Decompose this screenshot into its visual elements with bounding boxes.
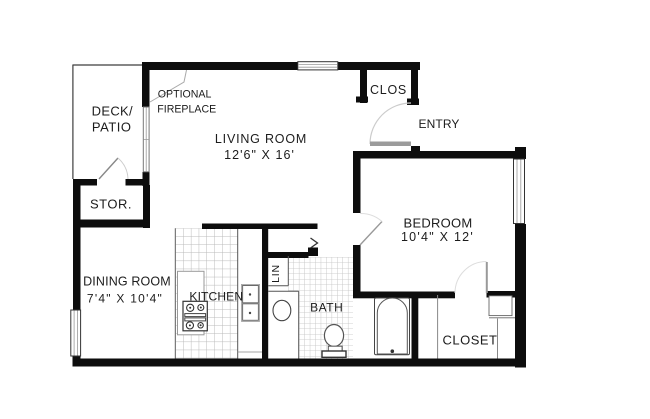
svg-text:DINING ROOM: DINING ROOM [83, 275, 171, 289]
svg-text:BEDROOM: BEDROOM [404, 215, 473, 230]
svg-text:DECK/: DECK/ [92, 103, 133, 118]
svg-text:FIREPLACE: FIREPLACE [157, 103, 216, 115]
svg-text:KITCHEN: KITCHEN [189, 289, 243, 303]
svg-text:LIN: LIN [270, 264, 282, 283]
svg-text:7'4" X 10'4": 7'4" X 10'4" [87, 292, 163, 306]
svg-text:STOR.: STOR. [90, 197, 132, 212]
svg-text:BATH: BATH [310, 301, 343, 315]
svg-text:12'6" X 16': 12'6" X 16' [224, 148, 295, 162]
svg-text:ENTRY: ENTRY [419, 117, 460, 131]
svg-text:10'4" X 12': 10'4" X 12' [401, 230, 474, 244]
svg-text:LIVING ROOM: LIVING ROOM [215, 132, 307, 146]
svg-text:CLOS: CLOS [370, 83, 407, 97]
svg-text:CLOSET: CLOSET [442, 333, 497, 348]
svg-text:OPTIONAL: OPTIONAL [158, 89, 212, 101]
svg-text:PATIO: PATIO [92, 120, 132, 135]
